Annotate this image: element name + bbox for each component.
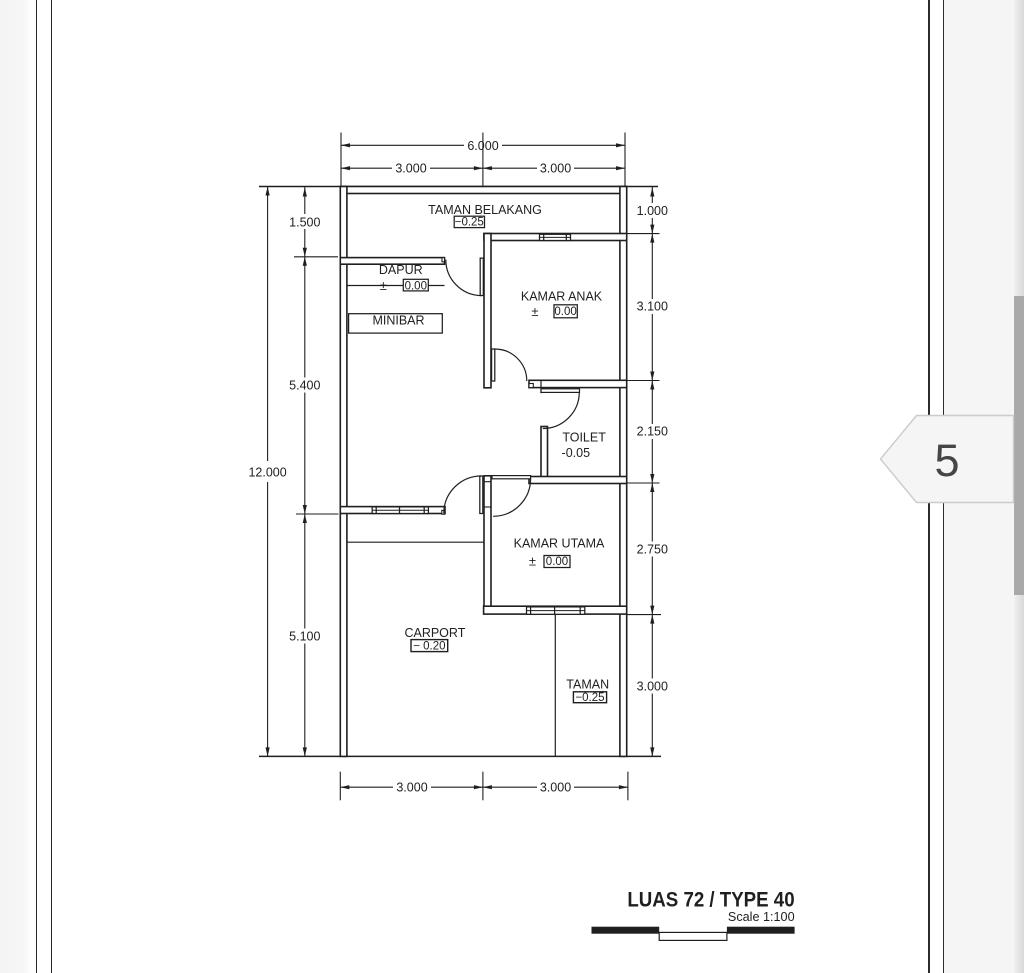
svg-text:3.000: 3.000	[395, 162, 426, 176]
svg-text:0.00: 0.00	[546, 556, 568, 568]
svg-text:KAMAR ANAK: KAMAR ANAK	[521, 289, 603, 303]
svg-text:-0.05: -0.05	[562, 446, 591, 460]
svg-text:0.00: 0.00	[554, 306, 576, 318]
svg-text:3.000: 3.000	[540, 781, 571, 795]
svg-text:3.000: 3.000	[540, 162, 571, 176]
svg-text:2.750: 2.750	[637, 542, 668, 556]
svg-text:±: ±	[529, 554, 536, 569]
svg-text:±: ±	[380, 278, 387, 293]
svg-text:1.500: 1.500	[289, 215, 320, 229]
svg-text:3.000: 3.000	[637, 679, 668, 693]
svg-text:− 0.20: − 0.20	[413, 641, 445, 653]
svg-text:TAMAN: TAMAN	[566, 677, 609, 691]
svg-text:−0.25: −0.25	[575, 692, 604, 704]
svg-text:5.400: 5.400	[289, 379, 320, 393]
svg-text:Scale 1:100: Scale 1:100	[728, 909, 795, 924]
svg-text:DAPUR: DAPUR	[379, 263, 423, 277]
svg-text:TOILET: TOILET	[562, 430, 606, 444]
svg-text:0.00: 0.00	[405, 281, 427, 293]
svg-text:12.000: 12.000	[248, 465, 286, 479]
svg-text:−0.25: −0.25	[455, 216, 484, 228]
svg-text:CARPORT: CARPORT	[404, 626, 465, 640]
svg-text:1.000: 1.000	[637, 204, 668, 218]
svg-text:3.100: 3.100	[637, 300, 668, 314]
svg-text:2.150: 2.150	[637, 424, 668, 438]
svg-text:5: 5	[934, 435, 959, 486]
svg-text:MINIBAR: MINIBAR	[372, 314, 424, 328]
svg-text:5.100: 5.100	[289, 629, 320, 643]
svg-text:TAMAN BELAKANG: TAMAN BELAKANG	[428, 203, 542, 217]
svg-text:±: ±	[531, 304, 538, 319]
svg-text:KAMAR UTAMA: KAMAR UTAMA	[514, 536, 605, 550]
svg-text:6.000: 6.000	[467, 139, 498, 153]
svg-text:3.000: 3.000	[396, 781, 427, 795]
